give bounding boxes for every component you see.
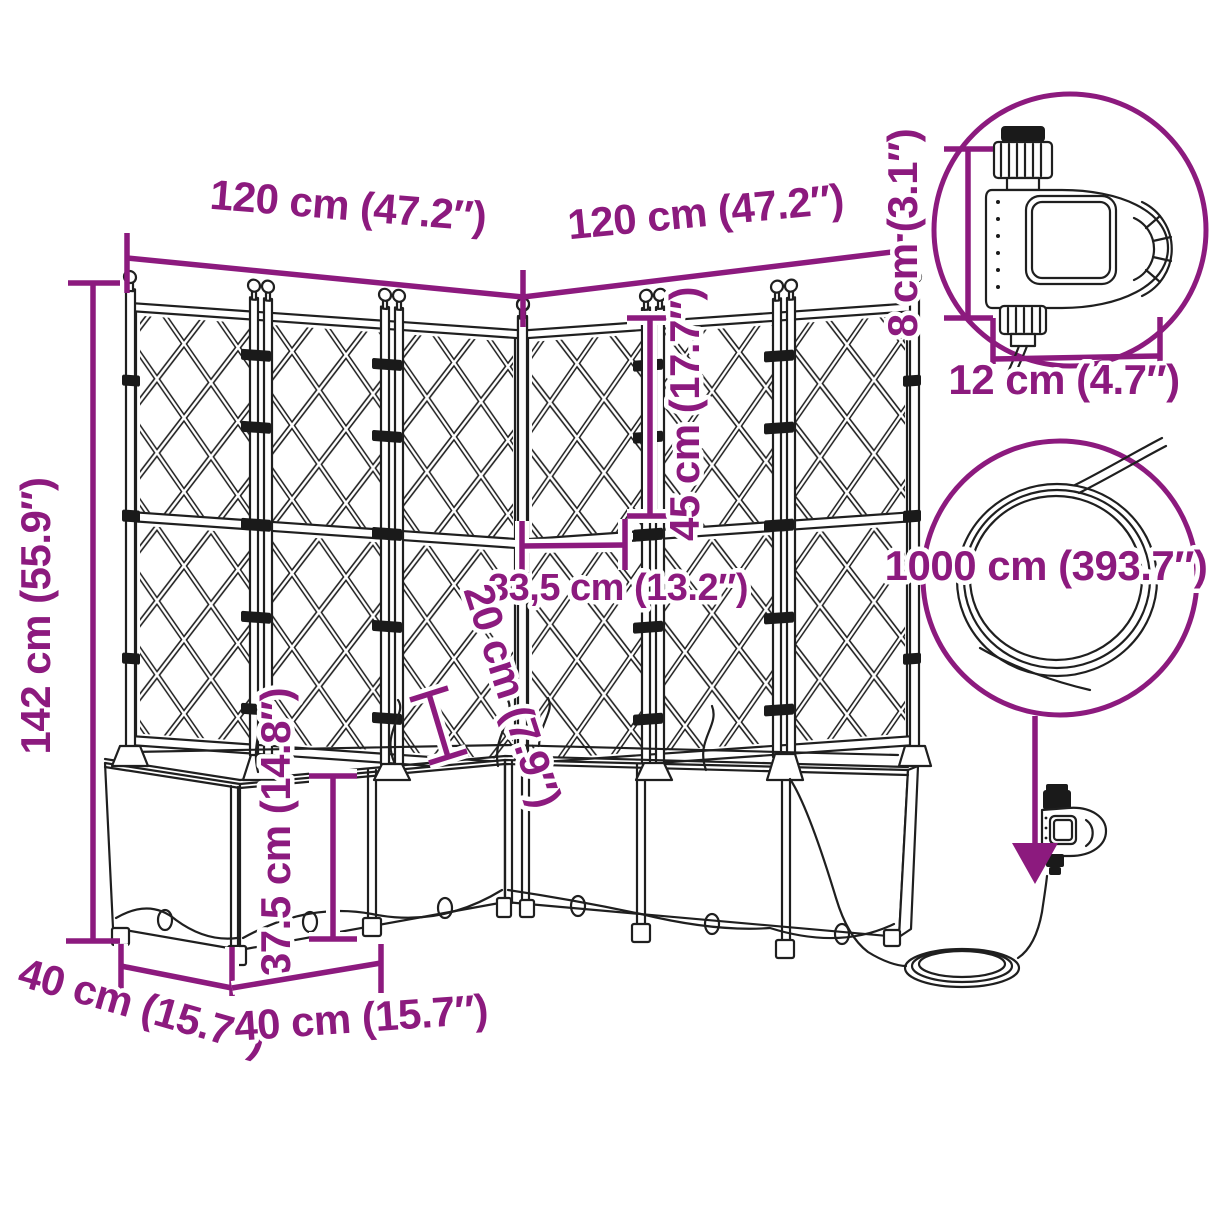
dim-total-height-label: 142 cm (55.9″) bbox=[12, 478, 59, 755]
water-timer-detail-circle bbox=[934, 94, 1206, 384]
dim-wall-left-width-label: 120 cm (47.2″) bbox=[208, 171, 488, 241]
dim-timer-width: 12 cm (4.7″) bbox=[948, 317, 1179, 403]
dim-timer-width-label: 12 cm (4.7″) bbox=[948, 356, 1179, 403]
water-timer-device bbox=[1042, 784, 1106, 875]
dim-hose-length-label: 1000 cm (393.7″) bbox=[885, 542, 1208, 589]
dim-corner-section-label: 33,5 cm (13.2″) bbox=[488, 567, 748, 609]
dim-hose-length: 1000 cm (393.7″) bbox=[885, 542, 1208, 589]
dim-wall-left-width: 120 cm (47.2″) bbox=[127, 171, 523, 327]
dim-trellis-section-label: 45 cm (17.7″) bbox=[661, 287, 708, 541]
dim-timer-height-label: 8 cm (3.1″) bbox=[879, 129, 926, 337]
trellis-left-wall bbox=[122, 270, 529, 774]
product-dimension-diagram: 120 cm (47.2″) 120 cm (47.2″) 142 cm (55… bbox=[0, 0, 1214, 1214]
trellis-right-wall bbox=[517, 271, 921, 775]
dim-total-height: 142 cm (55.9″) bbox=[12, 283, 120, 941]
dim-box-height-label: 37.5 cm (14.8″) bbox=[252, 688, 299, 976]
diagram-canvas: 120 cm (47.2″) 120 cm (47.2″) 142 cm (55… bbox=[0, 0, 1214, 1214]
dim-wall-right-width: 120 cm (47.2″) bbox=[523, 175, 900, 297]
dim-depth-front-label: 40 cm (15.7″) bbox=[233, 985, 490, 1050]
dim-wall-right-width-label: 120 cm (47.2″) bbox=[566, 175, 846, 248]
